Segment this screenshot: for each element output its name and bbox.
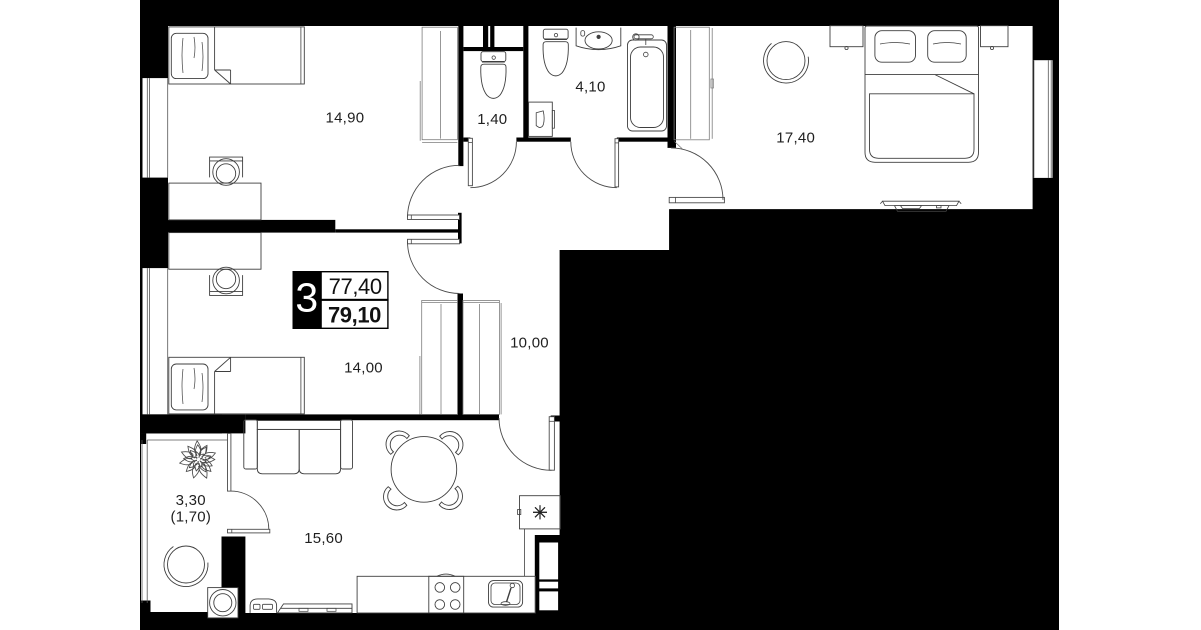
svg-text:4,10: 4,10 [575, 79, 605, 96]
svg-text:17,40: 17,40 [776, 130, 815, 147]
svg-text:1,40: 1,40 [477, 111, 507, 128]
svg-text:10,00: 10,00 [510, 334, 549, 351]
svg-text:14,00: 14,00 [344, 359, 383, 376]
svg-text:77,40: 77,40 [329, 274, 382, 299]
svg-text:14,90: 14,90 [326, 110, 365, 127]
svg-text:(1,70): (1,70) [170, 509, 211, 526]
svg-text:3: 3 [295, 275, 318, 321]
svg-text:3,30: 3,30 [176, 492, 206, 509]
svg-text:15,60: 15,60 [304, 530, 343, 547]
svg-text:79,10: 79,10 [328, 303, 381, 328]
